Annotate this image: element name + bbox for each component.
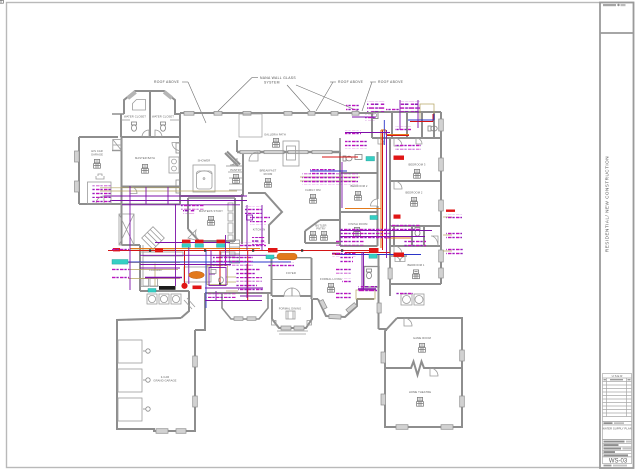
svg-text:FORMAL LIVING: FORMAL LIVING [320,277,342,281]
svg-text:NANA WALL GLASS: NANA WALL GLASS [260,76,296,80]
svg-text:PNTRY: PNTRY [316,226,326,230]
svg-text:RESIDENTIAL/ NEW CONSTRUCTION: RESIDENTIAL/ NEW CONSTRUCTION [605,156,610,252]
svg-text:MASTER BATH: MASTER BATH [135,156,155,160]
svg-text:GARAGE: GARAGE [91,153,103,157]
svg-text:HOME THEATRE: HOME THEATRE [409,390,431,394]
svg-text:WATER CLOSET: WATER CLOSET [152,115,174,119]
svg-text:GRAND GARAGE: GRAND GARAGE [153,378,176,382]
svg-text:MASTERS STUDY: MASTERS STUDY [199,209,223,213]
svg-text:ROOM: ROOM [264,172,273,176]
svg-text:FORMAL DINING: FORMAL DINING [279,307,302,311]
svg-text:WS-03: WS-03 [609,459,628,465]
svg-text:ROOF ABOVE: ROOF ABOVE [378,80,404,84]
svg-text:SHOWER: SHOWER [198,159,211,163]
svg-text:BEDROOM 3: BEDROOM 3 [408,163,425,167]
svg-text:FINISH ROOM: FINISH ROOM [348,222,368,226]
svg-text:ROOF ABOVE: ROOF ABOVE [154,80,180,84]
svg-text:SYSTEM: SYSTEM [264,81,280,85]
svg-text:GALLERIA PATH: GALLERIA PATH [264,133,286,137]
svg-text:LAUNDRY: LAUNDRY [149,268,163,272]
svg-text:BEDROOM 1: BEDROOM 1 [407,263,424,267]
svg-text:3-CAR: 3-CAR [161,375,170,379]
svg-text:BREAKFAST: BREAKFAST [260,169,277,173]
svg-text:KITCHEN: KITCHEN [253,228,266,232]
svg-text:ROOF ABOVE: ROOF ABOVE [338,80,364,84]
svg-text:FAMILY RM: FAMILY RM [305,188,321,192]
svg-text:BEDROOM 2: BEDROOM 2 [405,191,422,195]
svg-text:FOYER: FOYER [286,271,296,275]
svg-text:U S E R: U S E R [612,374,624,378]
svg-text:HIS CAR: HIS CAR [91,149,103,153]
svg-text:PANTRY: PANTRY [230,168,241,172]
svg-text:GAME ROOM: GAME ROOM [413,336,432,340]
svg-text:WATER CLOSET: WATER CLOSET [124,115,146,119]
svg-text:WATER SUPPLY PLAN: WATER SUPPLY PLAN [602,426,631,430]
